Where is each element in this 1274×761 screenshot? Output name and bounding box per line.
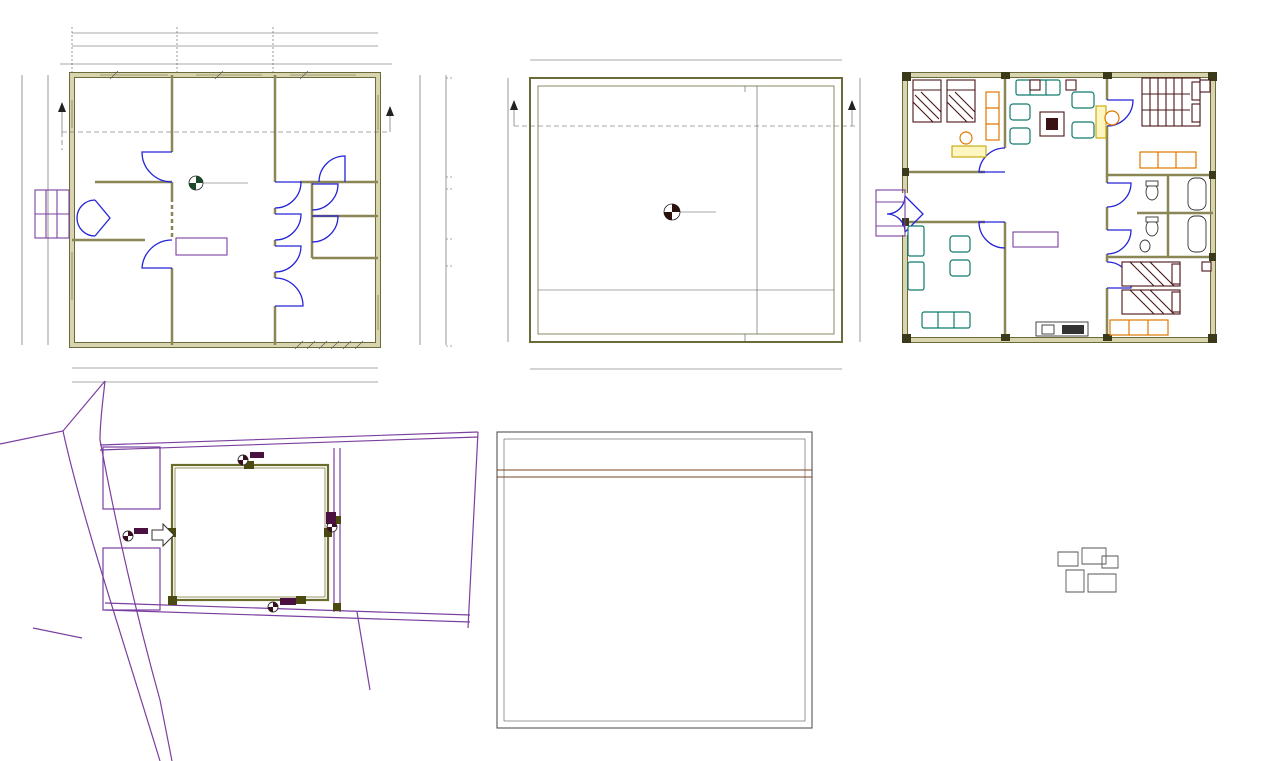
armchair-icon xyxy=(1010,104,1030,120)
plot-boundary xyxy=(100,432,478,690)
roads xyxy=(0,381,172,761)
side-table-icon xyxy=(1200,80,1210,92)
stairs xyxy=(35,190,69,238)
sink-icon xyxy=(1140,240,1150,252)
twin-bed-icon xyxy=(913,80,941,122)
roof-inner-wall xyxy=(538,86,834,334)
entrance-arrow-icon xyxy=(152,524,174,546)
side-table-icon xyxy=(1030,80,1040,90)
armchair-icon xyxy=(1010,128,1030,144)
twin-bed-icon xyxy=(947,80,975,122)
dimension-lines xyxy=(22,27,454,382)
armchair-icon xyxy=(950,236,970,252)
roof-level-symbol xyxy=(664,204,716,220)
walls xyxy=(70,73,381,348)
sofa-icon xyxy=(908,262,924,290)
side-table-icon xyxy=(1202,262,1211,271)
roof-outer-wall xyxy=(530,78,842,342)
foundation-detail-cluster xyxy=(1058,548,1118,592)
slab-outer xyxy=(497,432,812,728)
counter xyxy=(176,238,227,255)
panel-dimensioned-floor-plan xyxy=(22,27,454,382)
double-bed-icon xyxy=(1142,78,1200,126)
panel-site-plan xyxy=(0,381,478,761)
armchair-icon xyxy=(1072,122,1094,138)
section-line-h xyxy=(58,102,394,150)
toilet-icon xyxy=(1146,181,1158,200)
wardrobe-icon xyxy=(1110,320,1168,335)
drawing-canvas xyxy=(0,0,1274,761)
coffee-table-icon xyxy=(1040,112,1064,136)
hall-counter xyxy=(1013,232,1058,247)
level-marker-icon xyxy=(326,512,337,532)
single-bed-icon xyxy=(1122,262,1180,286)
sofa-icon xyxy=(908,226,924,256)
roof-dimension-lines xyxy=(508,60,860,369)
armchair-icon xyxy=(950,260,970,276)
bathtub-icon xyxy=(1188,178,1206,210)
toilet-icon xyxy=(1146,217,1158,236)
slab-inner xyxy=(504,439,805,721)
level-symbol xyxy=(189,176,248,190)
armchair-icon xyxy=(1072,92,1094,108)
panel-slab-plan xyxy=(497,432,812,728)
panel-roof-plan xyxy=(508,60,860,369)
sofa-icon xyxy=(922,312,970,328)
doors xyxy=(77,152,345,306)
wardrobe-icon xyxy=(1140,152,1196,168)
dresser-icon xyxy=(986,92,999,140)
panel-foundation-plan xyxy=(1058,548,1118,592)
site-building xyxy=(168,461,341,611)
windows xyxy=(70,71,381,349)
level-marker-icon xyxy=(123,528,148,541)
rebar-chords xyxy=(497,470,812,477)
bathtub-icon xyxy=(1188,216,1206,252)
cad-sheet xyxy=(0,0,1274,761)
kitchen-counter-icon xyxy=(1036,322,1088,336)
side-table-icon xyxy=(1066,80,1076,90)
furniture xyxy=(908,78,1211,336)
site-symbols xyxy=(123,452,337,612)
vanity-icon xyxy=(952,132,986,157)
panel-furnished-floor-plan xyxy=(876,72,1217,343)
single-bed-icon xyxy=(1122,290,1180,314)
